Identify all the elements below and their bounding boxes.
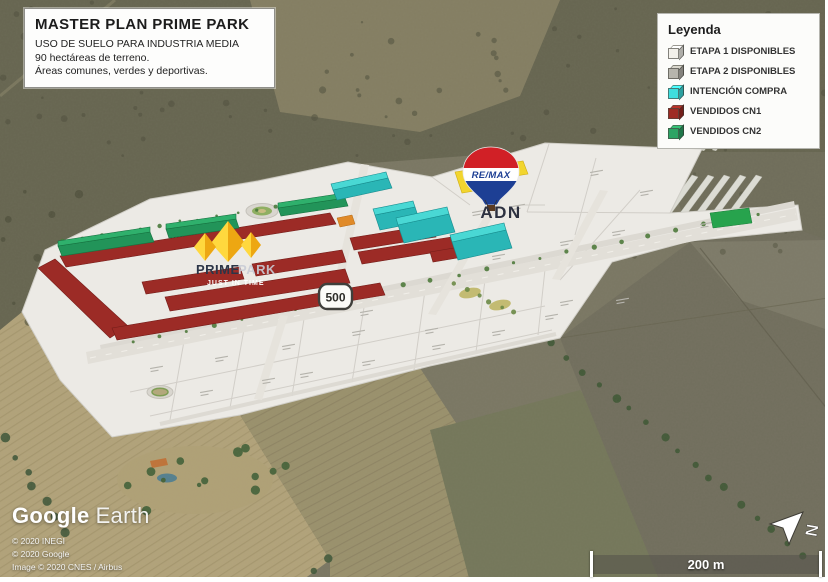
master-plan-title-box: MASTER PLAN PRIME PARK USO DE SUELO PARA… bbox=[24, 8, 275, 88]
tree-dot bbox=[592, 245, 597, 250]
tree-dot bbox=[237, 212, 240, 215]
remax-label: RE/MAX bbox=[472, 170, 511, 181]
adn-label: ADN bbox=[480, 203, 521, 222]
page-title: MASTER PLAN PRIME PARK bbox=[35, 16, 264, 33]
tree-dot bbox=[500, 306, 504, 310]
title-line-3: Áreas comunes, verdes y deportivas. bbox=[35, 65, 264, 79]
tree-dot bbox=[158, 335, 162, 339]
legend-panel: Leyenda ETAPA 1 DISPONIBLES ETAPA 2 DISP… bbox=[657, 13, 820, 149]
tree-dot bbox=[465, 287, 470, 292]
copyright-line-1: © 2020 INEGI bbox=[12, 535, 150, 548]
legend-item-etapa1: ETAPA 1 DISPONIBLES bbox=[668, 44, 809, 59]
legend-header: Leyenda bbox=[668, 22, 809, 37]
roundabout bbox=[246, 204, 278, 219]
tree-dot bbox=[538, 257, 541, 260]
legend-item-vendidos-cn1: VENDIDOS CN1 bbox=[668, 104, 809, 119]
cn1-swatch-icon bbox=[668, 104, 683, 119]
tree-dot bbox=[132, 340, 135, 343]
scale-bar-label: 200 m bbox=[688, 557, 725, 572]
legend-item-vendidos-cn2: VENDIDOS CN2 bbox=[668, 124, 809, 139]
tree-dot bbox=[255, 209, 258, 212]
tree-dot bbox=[511, 310, 516, 315]
tree-dot bbox=[484, 266, 489, 271]
tree-dot bbox=[486, 299, 491, 304]
brand-park-text: PARK bbox=[238, 262, 276, 277]
tree-dot bbox=[274, 205, 278, 209]
tree-dot bbox=[564, 249, 568, 253]
legend-item-intencion: INTENCIÓN COMPRA bbox=[668, 84, 809, 99]
google-earth-logo: GoogleEarth bbox=[12, 503, 150, 529]
map-canvas[interactable]: PRIME PARK JUST IN TIME 500 RE/MAX ADN N… bbox=[0, 0, 828, 582]
copyright-line-2: © 2020 Google bbox=[12, 548, 150, 561]
tree-dot bbox=[185, 330, 188, 333]
highway-500-label: 500 bbox=[325, 291, 345, 305]
intencion-swatch-icon bbox=[668, 84, 683, 99]
etapa1-swatch-icon bbox=[668, 44, 683, 59]
tree-dot bbox=[673, 228, 678, 233]
map-attribution: GoogleEarth © 2020 INEGI © 2020 Google I… bbox=[12, 503, 150, 574]
title-line-2: 90 hectáreas de terreno. bbox=[35, 52, 264, 66]
tree-dot bbox=[757, 213, 760, 216]
legend-item-etapa2: ETAPA 2 DISPONIBLES bbox=[668, 64, 809, 79]
tree-dot bbox=[452, 281, 456, 285]
tree-dot bbox=[457, 274, 461, 278]
tree-dot bbox=[512, 261, 515, 264]
etapa2-swatch-icon bbox=[668, 64, 683, 79]
brand-tagline-text: JUST IN TIME bbox=[207, 280, 265, 287]
roundabout bbox=[147, 386, 173, 399]
tree-dot bbox=[401, 282, 406, 287]
bottom-margin bbox=[0, 577, 828, 582]
tree-dot bbox=[478, 293, 482, 297]
tree-dot bbox=[619, 240, 624, 245]
cn2-swatch-icon bbox=[668, 124, 683, 139]
highway-500-shield: 500 bbox=[319, 284, 352, 309]
tree-dot bbox=[157, 224, 161, 228]
tree-dot bbox=[428, 278, 433, 283]
brand-prime-text: PRIME bbox=[196, 262, 240, 277]
copyright-line-3: Image © 2020 CNES / Airbus bbox=[12, 561, 150, 574]
tree-dot bbox=[645, 234, 650, 239]
title-line-1: USO DE SUELO PARA INDUSTRIA MEDIA bbox=[35, 38, 264, 52]
scale-bar: 200 m bbox=[593, 555, 819, 574]
